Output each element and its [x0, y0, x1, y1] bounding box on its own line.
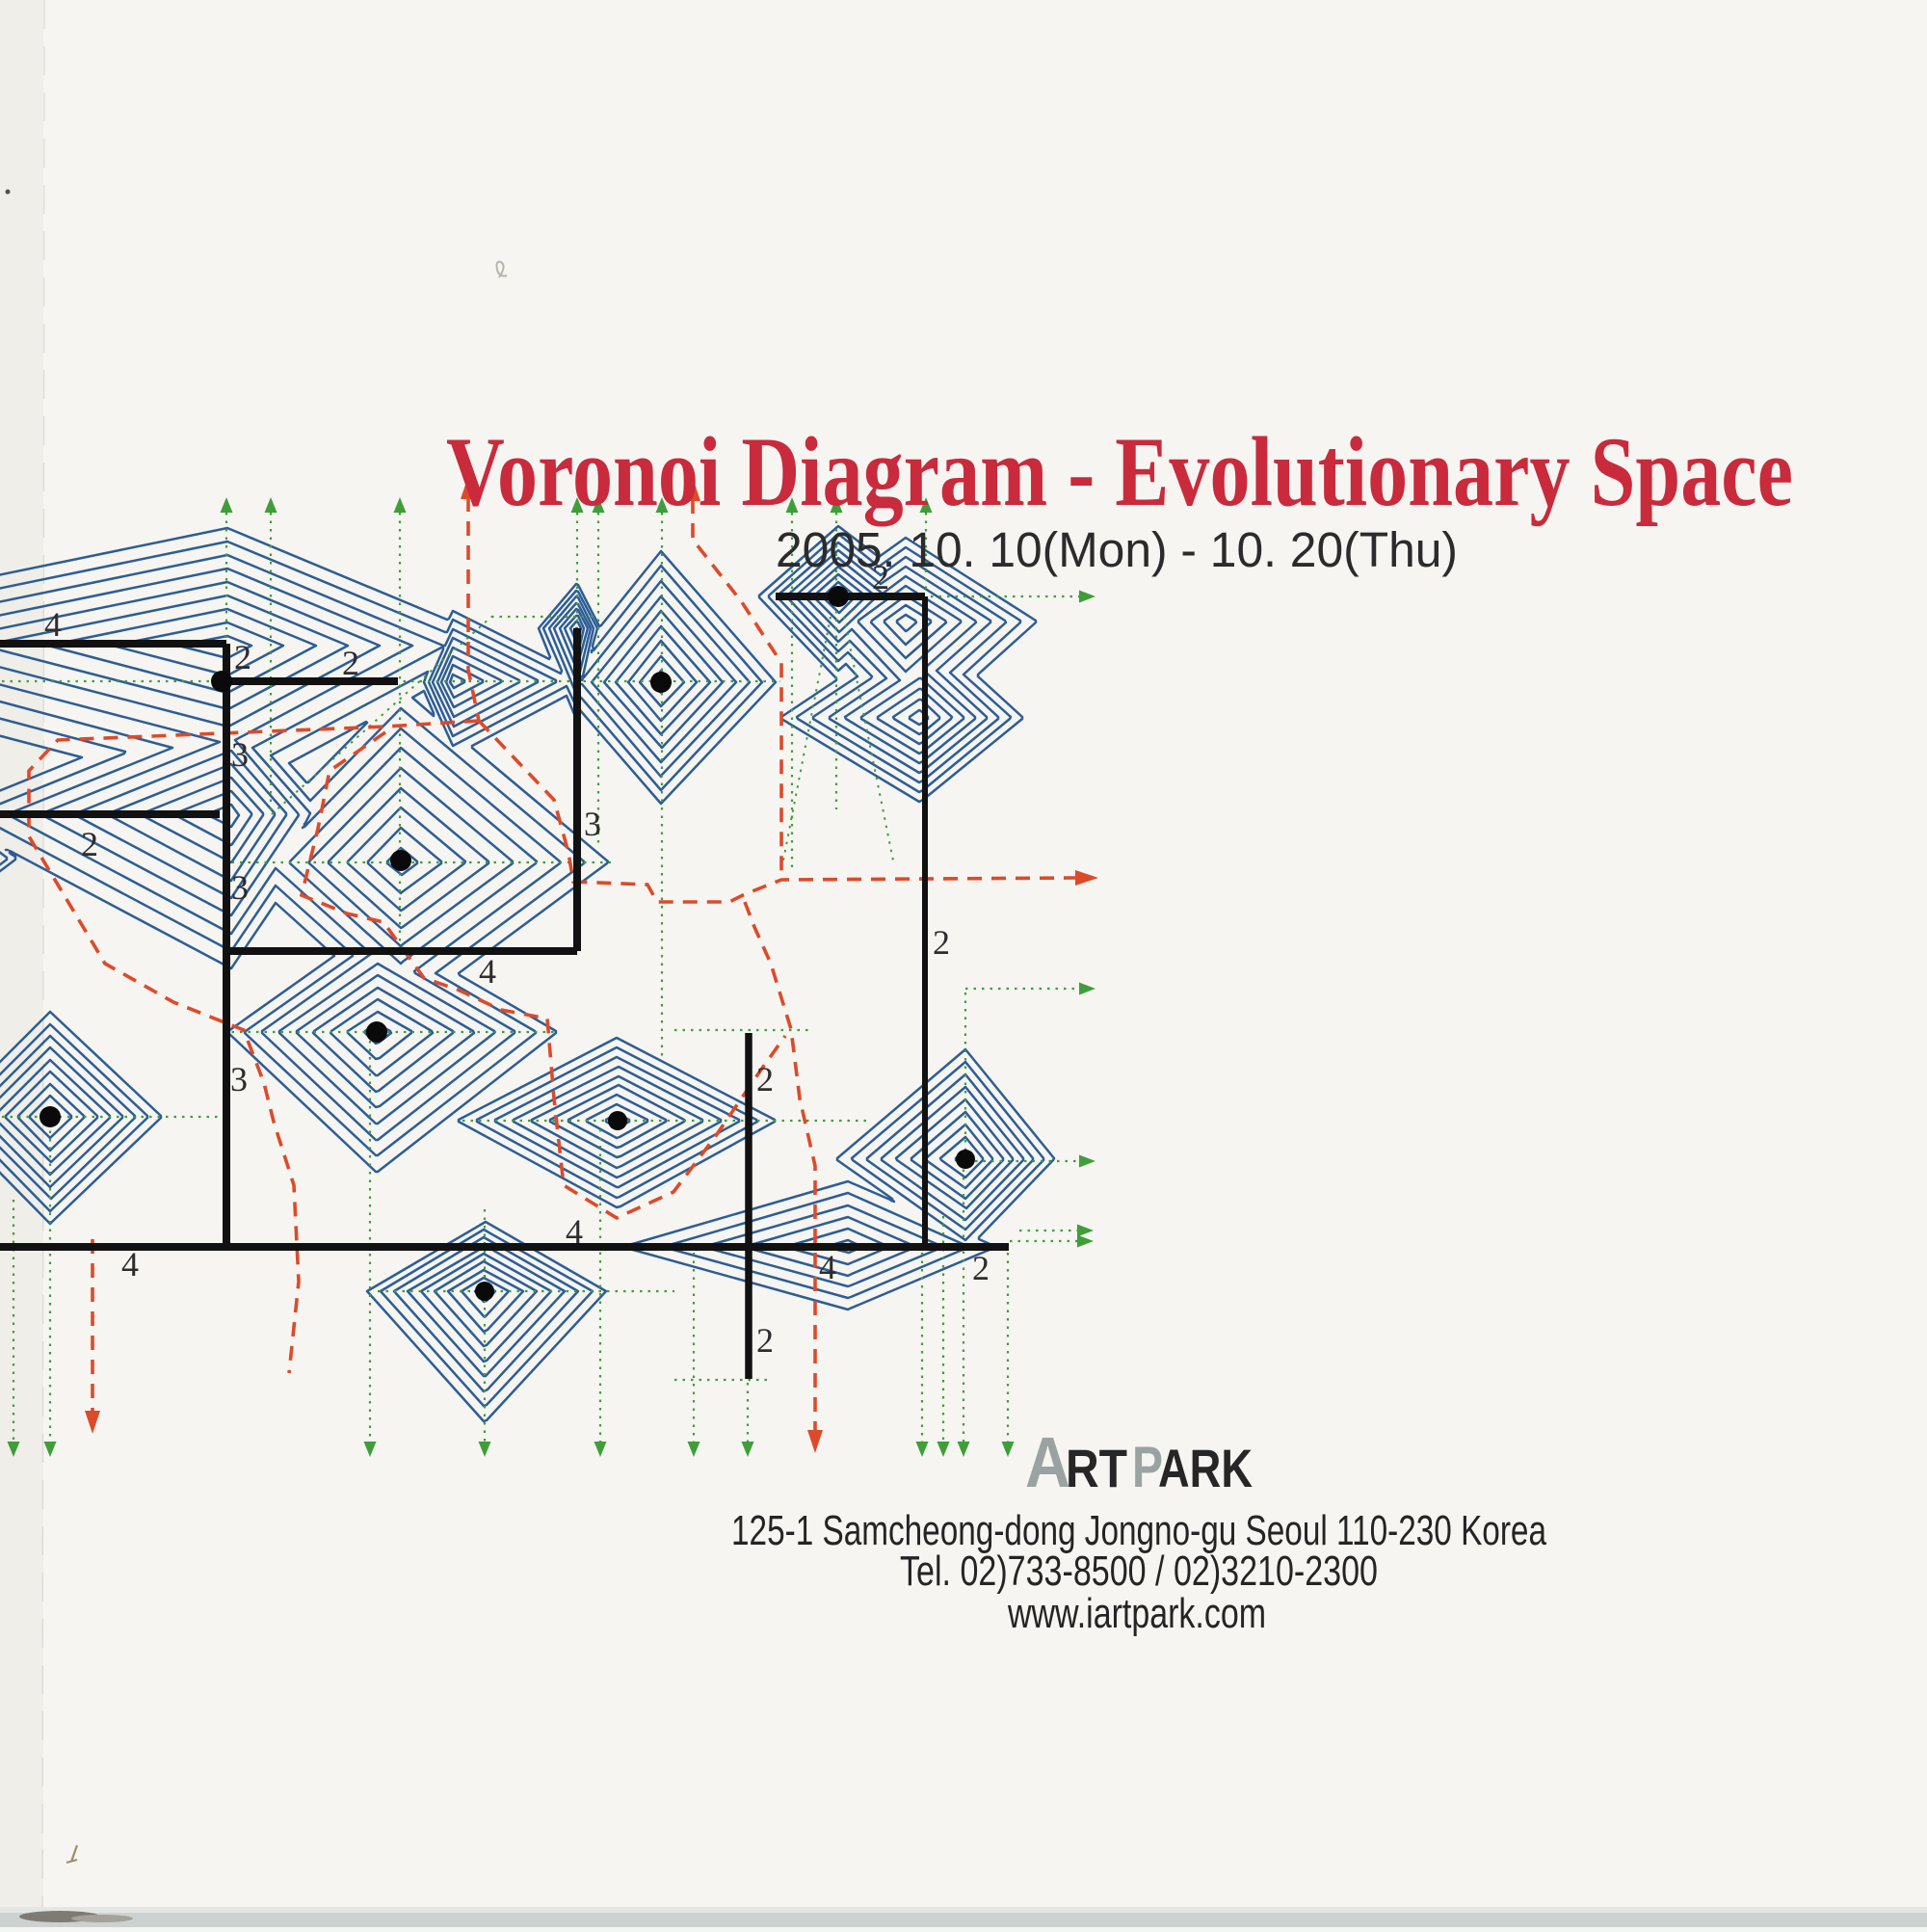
svg-text:3: 3 [231, 868, 249, 907]
svg-text:2: 2 [756, 1321, 774, 1360]
svg-text:2: 2 [972, 1249, 990, 1287]
svg-text:4: 4 [566, 1212, 583, 1251]
svg-text:4: 4 [479, 952, 496, 991]
svg-text:3: 3 [584, 805, 601, 843]
svg-text:RT: RT [1066, 1438, 1127, 1498]
svg-text:Voronoi Diagram - Evolutionary: Voronoi Diagram - Evolutionary Space [446, 417, 1793, 527]
svg-text:2005. 10. 10(Mon) - 10. 20(Thu: 2005. 10. 10(Mon) - 10. 20(Thu) [776, 522, 1458, 577]
svg-text:Tel. 02)733-8500 / 02)3210-230: Tel. 02)733-8500 / 02)3210-2300 [900, 1548, 1378, 1595]
svg-text:4: 4 [819, 1248, 836, 1286]
svg-text:2: 2 [933, 923, 950, 962]
svg-text:3: 3 [230, 1060, 248, 1098]
svg-text:2: 2 [342, 644, 359, 682]
svg-text:4: 4 [44, 605, 62, 644]
svg-text:www.iartpark.com: www.iartpark.com [1007, 1590, 1266, 1637]
svg-text:2: 2 [81, 825, 98, 863]
svg-text:A: A [1025, 1422, 1070, 1502]
svg-text:2: 2 [234, 638, 251, 676]
svg-text:4: 4 [121, 1245, 139, 1284]
svg-text:3: 3 [231, 735, 249, 774]
svg-text:ARK: ARK [1158, 1438, 1253, 1498]
svg-text:2: 2 [756, 1060, 774, 1098]
